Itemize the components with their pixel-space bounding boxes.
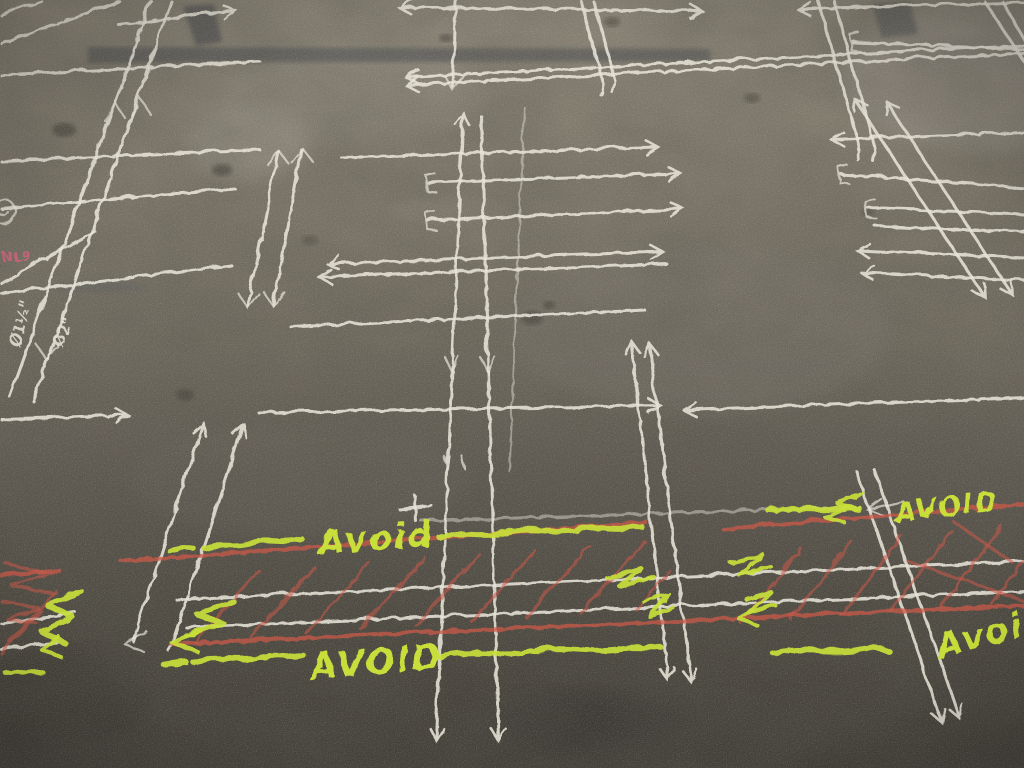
floor-photo-canvas: NL9 Avoid AVOID AV [0, 0, 1024, 768]
vignette-overlay [0, 0, 1024, 768]
floor-photo: NL9 Avoid AVOID AV [0, 0, 1024, 768]
